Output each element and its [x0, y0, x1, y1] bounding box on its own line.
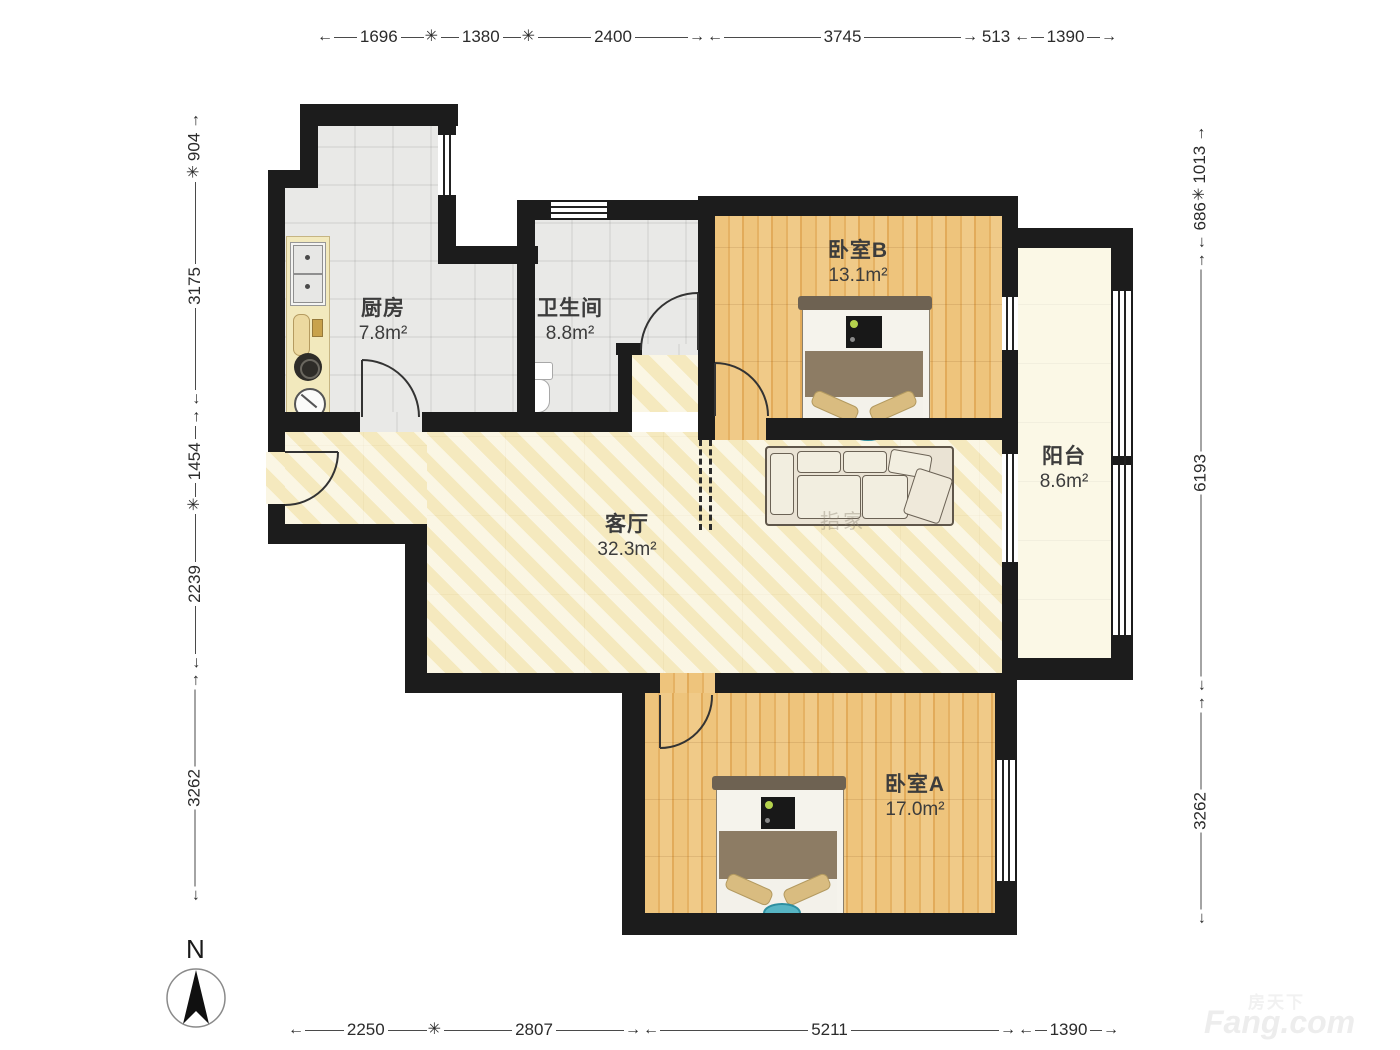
dim-value: 686: [1191, 199, 1211, 233]
wall-segment: [268, 170, 285, 452]
dim-arrow: →: [1192, 125, 1208, 143]
dim-arrow: ✳: [187, 497, 203, 512]
floor-entry-gap: [266, 452, 285, 504]
wall-segment: [618, 345, 632, 430]
bed-tv-panel: [846, 316, 882, 348]
wall-segment: [1002, 347, 1018, 451]
watermark-site-en: Fang.com: [1204, 1004, 1355, 1041]
wall-segment: [517, 200, 715, 220]
dim-arrow: →: [1193, 251, 1209, 269]
north-compass-circle: [167, 969, 225, 1027]
dim-value: 1013: [1190, 143, 1210, 187]
floor-bedroom-b-door-gap: [715, 418, 766, 440]
room-name: 厨房: [359, 292, 408, 322]
dim-value: 6193: [1191, 451, 1211, 495]
dim-right: ←6193→: [1190, 252, 1212, 695]
watermark-plan: 指家: [820, 505, 866, 534]
dim-value: 5211: [808, 1020, 851, 1040]
tv-grey-dot: [765, 818, 770, 823]
dim-top: 1380✳: [439, 26, 536, 48]
room-label-bedroom-b: 卧室B 13.1m²: [828, 234, 888, 287]
dim-arrow: ←: [1017, 1022, 1035, 1038]
dim-top: ←3745→: [706, 26, 979, 48]
dim-value: 3262: [185, 766, 205, 810]
dim-left: ✳1454→: [184, 408, 206, 512]
cutting-board: [293, 314, 310, 356]
window-mullion: [1111, 456, 1133, 465]
room-area: 8.8m²: [537, 323, 603, 345]
stove-burner-ring: [300, 359, 320, 379]
room-area: 8.6m²: [1040, 471, 1089, 493]
bed-headboard: [798, 296, 932, 310]
dim-value: 513: [979, 27, 1013, 47]
tv-grey-dot: [850, 337, 855, 342]
dim-bottom: ←1390→: [1017, 1019, 1120, 1041]
dim-arrow: →: [1102, 1022, 1120, 1038]
dim-arrow: ←: [1193, 910, 1209, 928]
dim-arrow: →: [187, 112, 203, 130]
dim-value: 3175: [185, 264, 205, 308]
dim-arrow: →: [999, 1022, 1017, 1038]
window-living-balcony: [1002, 451, 1018, 565]
dim-arrow: ←: [187, 654, 203, 672]
dim-top: ←1696✳: [316, 26, 439, 48]
wall-segment: [622, 673, 645, 935]
dim-value: 3262: [1191, 789, 1211, 833]
bed-blanket: [805, 351, 923, 397]
dim-arrow: ←: [316, 29, 334, 45]
dashed-opening-line: [709, 440, 712, 530]
room-name: 卧室A: [885, 768, 945, 798]
sink-drain: [305, 255, 310, 260]
dim-arrow: →: [624, 1022, 642, 1038]
dim-bottom: 2807→: [442, 1019, 642, 1041]
wall-segment: [698, 196, 715, 433]
window-bedroom-a: [997, 757, 1015, 884]
dim-arrow: →: [1100, 29, 1118, 45]
wall-segment: [715, 673, 1017, 693]
dim-value: 2239: [185, 562, 205, 606]
kitchen-counter: [286, 236, 330, 430]
sofa-back-cushion: [797, 451, 841, 473]
dim-arrow: →: [961, 29, 979, 45]
dim-value: 2807: [512, 1020, 556, 1040]
room-area: 7.8m²: [359, 323, 408, 345]
wall-segment: [698, 418, 715, 440]
wall-segment: [517, 200, 535, 430]
room-label-kitchen: 厨房 7.8m²: [359, 292, 408, 345]
room-area: 32.3m²: [597, 539, 656, 561]
tv-green-dot: [765, 801, 773, 809]
dim-arrow: ←: [1193, 677, 1209, 695]
dim-top: 513: [979, 26, 1013, 48]
kitchen-item: [312, 319, 323, 337]
dim-left: ✳904→: [184, 115, 206, 180]
floor-kitchen: [438, 264, 517, 412]
floor-plan: N 厨房 7.8m² 卫生间 8.8m² 卧室B 13.1m² 阳台 8.6m²…: [0, 0, 1400, 1050]
dim-arrow: →: [688, 29, 706, 45]
dim-bottom: ←5211→: [642, 1019, 1017, 1041]
wall-segment: [268, 412, 360, 432]
room-label-living: 客厅 32.3m²: [597, 508, 656, 561]
room-name: 卧室B: [828, 234, 888, 264]
room-area: 13.1m²: [828, 265, 888, 287]
dim-arrow: →: [1193, 694, 1209, 712]
room-label-bathroom: 卫生间 8.8m²: [537, 292, 603, 345]
floor-bedroom-a-door-gap: [660, 673, 715, 693]
dim-value: 3745: [821, 27, 865, 47]
room-name: 卫生间: [537, 292, 603, 322]
wall-segment: [268, 524, 427, 544]
bed-tv-panel: [761, 797, 795, 829]
window-bedroom-b-balcony: [1002, 294, 1018, 353]
dim-value: 2250: [344, 1020, 388, 1040]
dashed-opening-line: [699, 440, 702, 530]
dim-bottom: ←2250✳: [287, 1019, 442, 1041]
floor-living: [285, 432, 427, 524]
kitchen-sink: [290, 242, 326, 306]
dim-value: 1390: [1047, 1020, 1091, 1040]
dim-left: ←3175: [184, 180, 206, 408]
dim-arrow: ✳: [424, 29, 439, 45]
wall-segment: [300, 104, 458, 126]
dim-value: 1454: [185, 439, 205, 483]
bed-bedroom-a: [716, 780, 844, 920]
dim-arrow: ←: [287, 1022, 305, 1038]
dim-arrow: ✳: [427, 1022, 442, 1038]
dim-value: 904: [185, 130, 205, 164]
dim-top: ←1390→: [1013, 26, 1118, 48]
wall-segment: [1008, 658, 1133, 680]
north-arrow: [183, 970, 209, 1024]
sofa-seat-cushion: [862, 475, 908, 519]
bed-blanket: [719, 831, 837, 879]
room-label-bedroom-a: 卧室A 17.0m²: [885, 768, 945, 821]
dim-arrow: ←: [187, 887, 203, 905]
tv-green-dot: [850, 320, 858, 328]
wall-segment: [422, 412, 632, 432]
dim-arrow: →: [187, 671, 203, 689]
wall-segment: [622, 913, 1017, 935]
dim-arrow: →: [187, 408, 203, 426]
wall-segment: [405, 524, 427, 693]
dim-arrow: ←: [642, 1022, 660, 1038]
bed-headboard: [712, 776, 846, 790]
room-name: 阳台: [1040, 440, 1089, 470]
dim-arrow: ←: [187, 390, 203, 408]
room-area: 17.0m²: [885, 799, 945, 821]
dim-value: 1390: [1044, 27, 1088, 47]
wall-segment: [766, 418, 1018, 440]
floor-kitchen-door-gap: [360, 412, 422, 432]
dim-arrow: ←: [1013, 29, 1031, 45]
floor-bath-door-gap: [642, 344, 698, 355]
window-balcony-exterior: [1113, 288, 1131, 638]
sink-drain: [305, 284, 310, 289]
dim-right: ←686: [1190, 203, 1212, 252]
floor-hallway-notch: [632, 355, 698, 412]
wall-segment: [698, 196, 1018, 216]
dim-arrow: ←: [1193, 234, 1209, 252]
dim-top: 2400→: [536, 26, 706, 48]
north-label: N: [186, 934, 205, 965]
dim-value: 1696: [357, 27, 401, 47]
window-bathroom: [548, 202, 610, 218]
sofa-back-cushion: [843, 451, 887, 473]
dim-left: ←2239: [184, 512, 206, 672]
sofa-armrest: [770, 453, 794, 515]
dim-right: ✳1013→: [1189, 130, 1211, 202]
room-name: 客厅: [597, 508, 656, 538]
dim-value: 1380: [459, 27, 503, 47]
dim-arrow: ✳: [187, 164, 203, 179]
dim-left: ←3262→: [184, 672, 206, 905]
dim-arrow: ✳: [521, 29, 536, 45]
dim-value: 2400: [591, 27, 635, 47]
window-kitchen: [438, 132, 456, 198]
room-label-balcony: 阳台 8.6m²: [1040, 440, 1089, 493]
dim-right: ←3262→: [1190, 695, 1212, 928]
floor-kitchen: [318, 126, 438, 412]
dim-arrow: ←: [706, 29, 724, 45]
